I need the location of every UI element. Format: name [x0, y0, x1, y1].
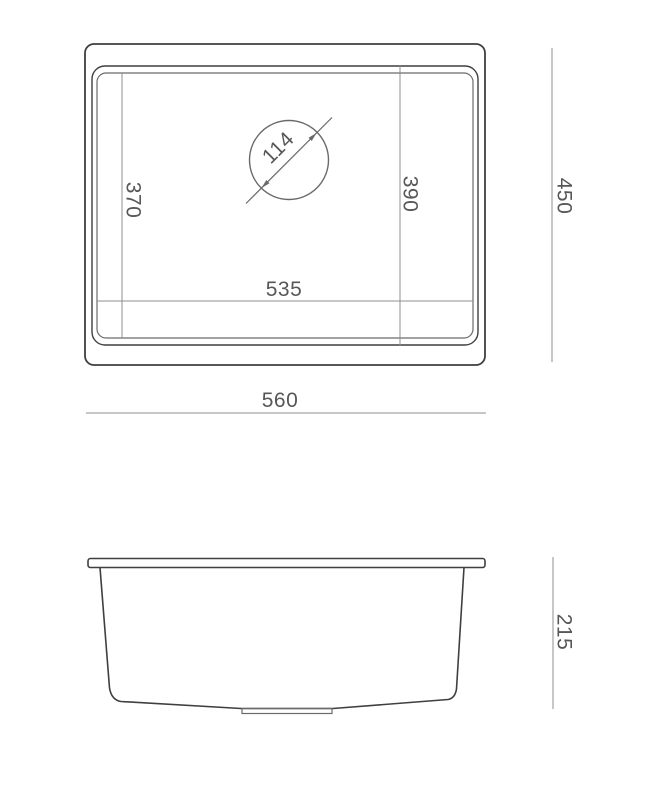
dim-label-overall-depth: 450	[553, 178, 576, 215]
sink-flange	[88, 559, 485, 568]
top-view: 114 370 390 535 450 560	[85, 44, 576, 413]
dim-label-overall-height: 215	[553, 614, 576, 651]
dim-label-drain-diameter: 114	[258, 127, 299, 168]
side-view: 215	[88, 557, 576, 714]
drawing-canvas: 114 370 390 535 450 560	[0, 0, 646, 800]
sink-technical-drawing: 114 370 390 535 450 560	[0, 0, 646, 800]
dim-label-bowl-depth-inner: 370	[122, 182, 145, 219]
drain-diameter-line	[246, 118, 332, 204]
dim-label-bowl-width: 535	[266, 278, 303, 301]
bowl-profile	[100, 568, 464, 709]
dim-label-bowl-depth-outer: 390	[399, 176, 422, 213]
dim-label-overall-width: 560	[262, 389, 299, 412]
